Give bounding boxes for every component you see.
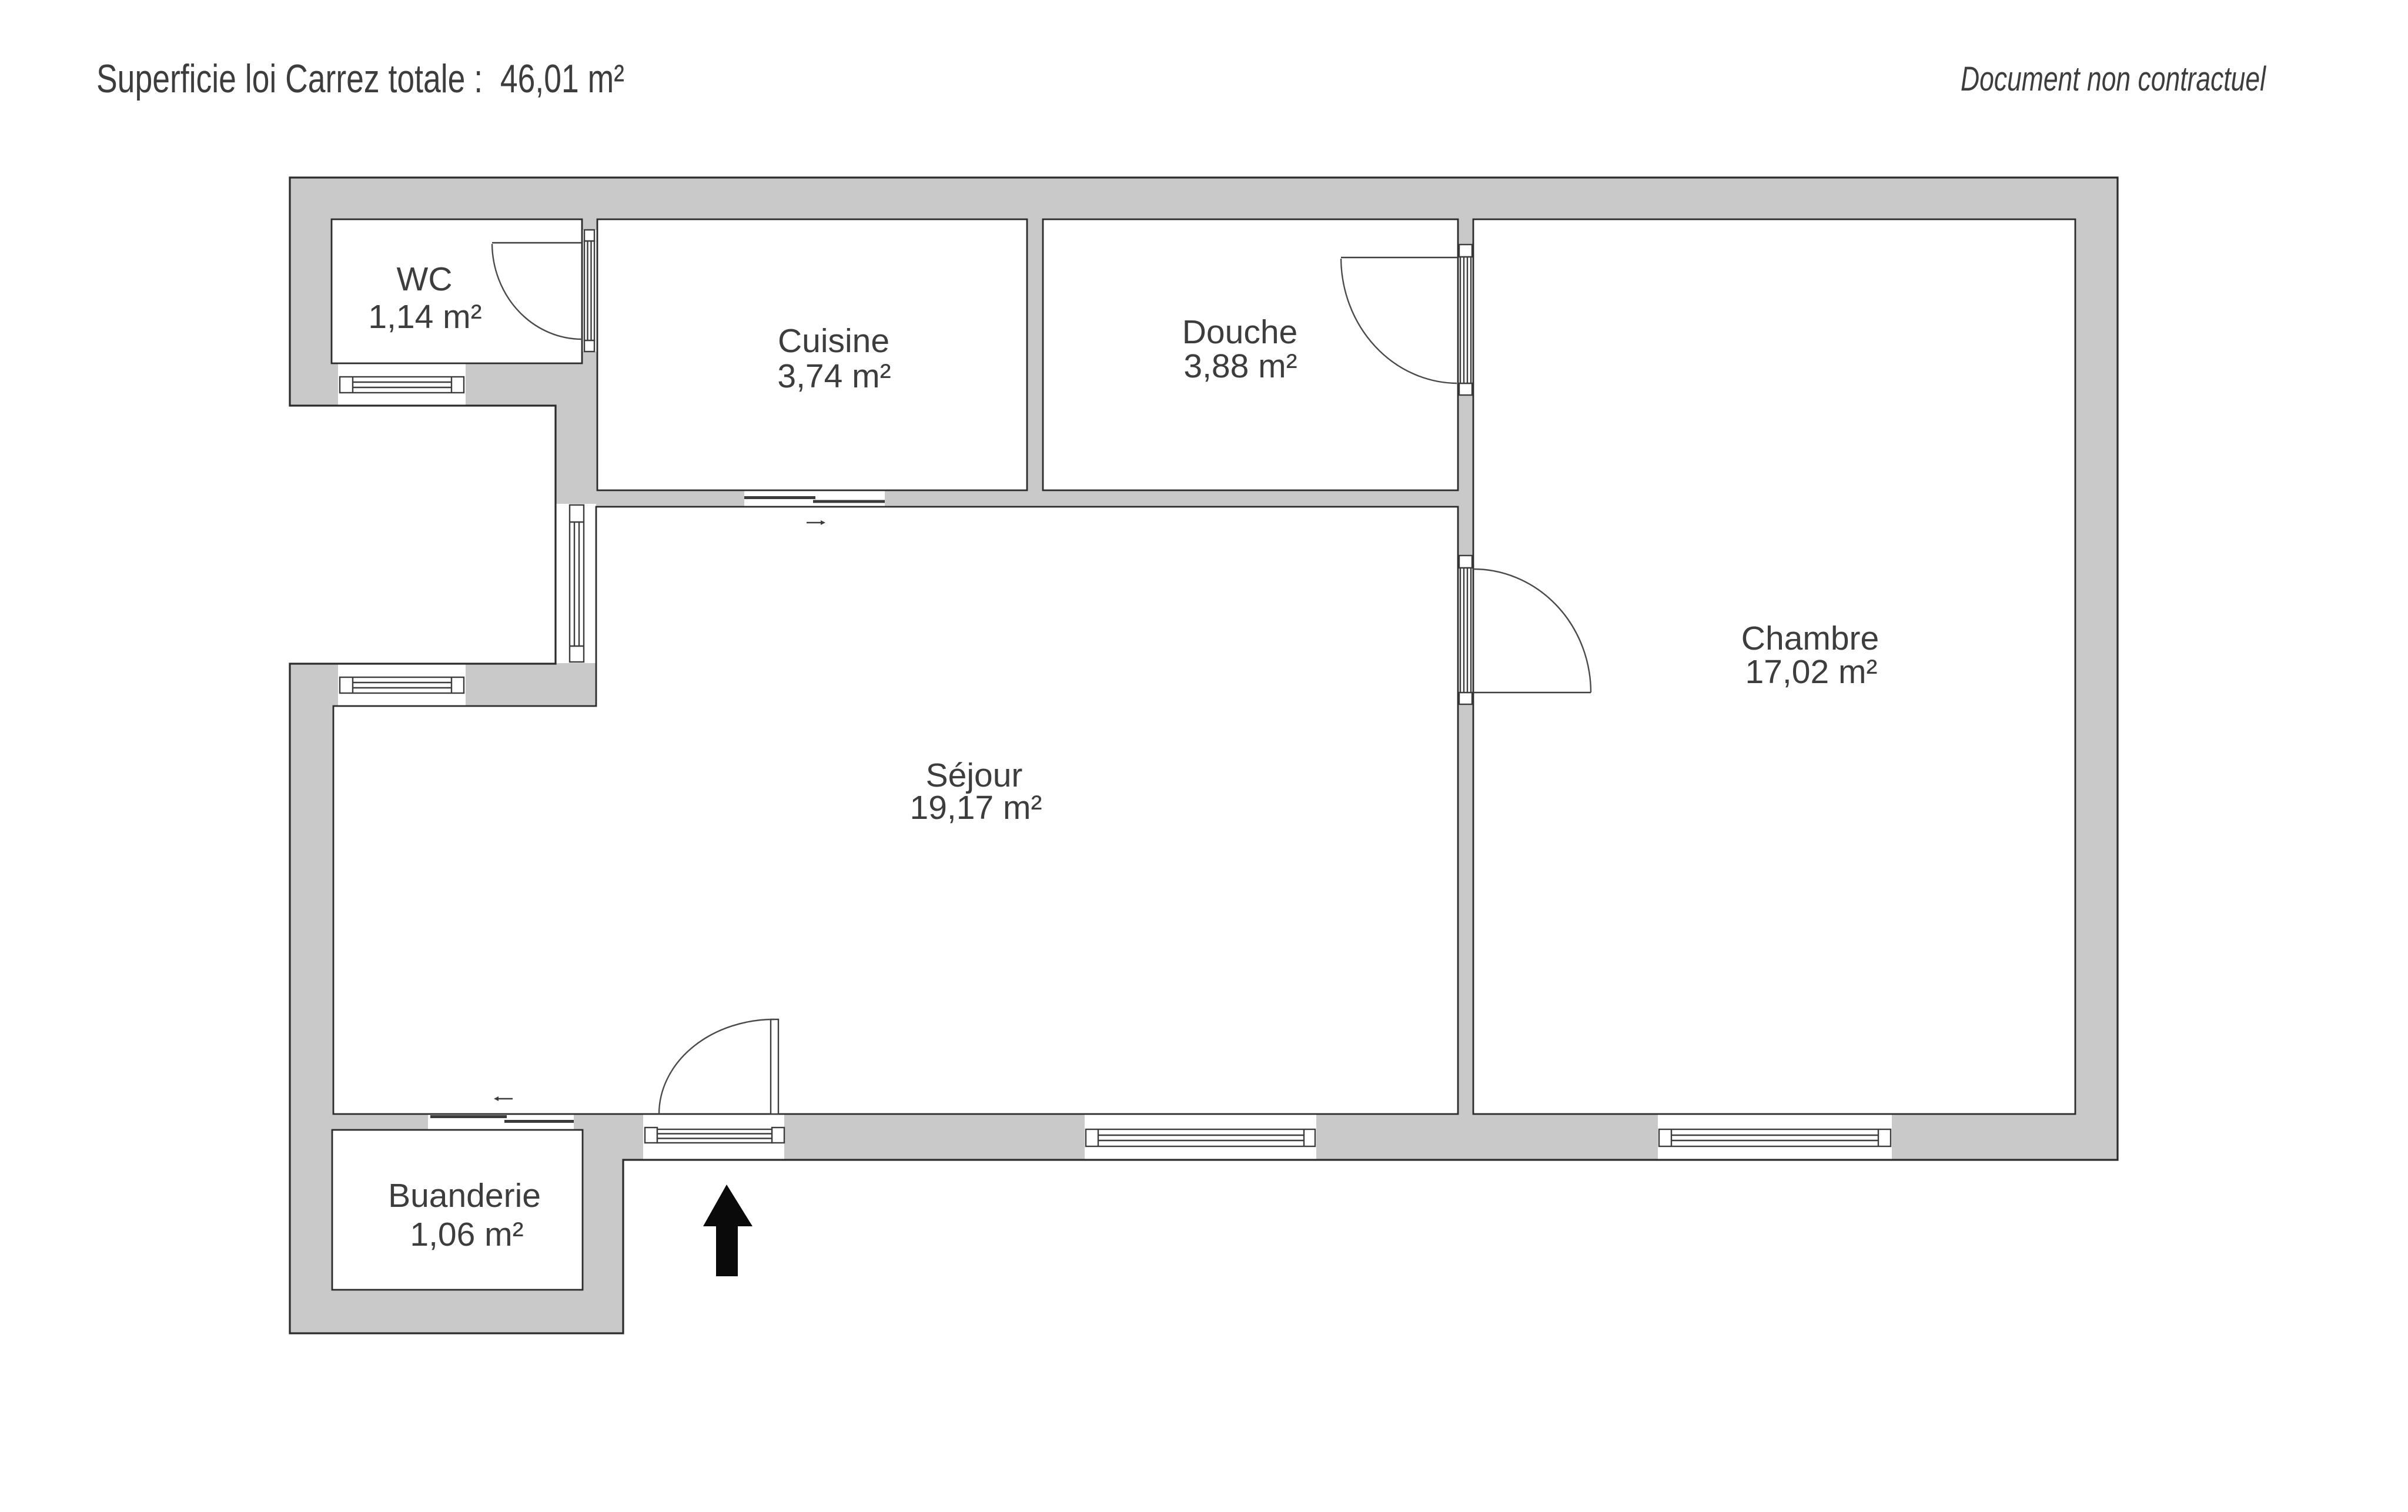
svg-text:Superficie loi Carrez totale :: Superficie loi Carrez totale : 46,01 m² bbox=[96, 56, 624, 101]
svg-text:1,14 m²: 1,14 m² bbox=[368, 298, 481, 336]
svg-text:1,06 m²: 1,06 m² bbox=[410, 1216, 523, 1253]
svg-text:Buanderie: Buanderie bbox=[388, 1177, 541, 1215]
svg-text:Chambre: Chambre bbox=[1741, 620, 1879, 657]
svg-text:Cuisine: Cuisine bbox=[778, 322, 889, 360]
svg-text:Douche: Douche bbox=[1182, 313, 1297, 351]
svg-text:3,88 m²: 3,88 m² bbox=[1183, 347, 1297, 385]
svg-text:3,74 m²: 3,74 m² bbox=[777, 357, 891, 395]
svg-text:WC: WC bbox=[397, 260, 453, 298]
svg-text:Document non contractuel: Document non contractuel bbox=[1961, 60, 2267, 98]
svg-text:19,17 m²: 19,17 m² bbox=[910, 789, 1042, 827]
svg-text:17,02 m²: 17,02 m² bbox=[1745, 653, 1878, 691]
